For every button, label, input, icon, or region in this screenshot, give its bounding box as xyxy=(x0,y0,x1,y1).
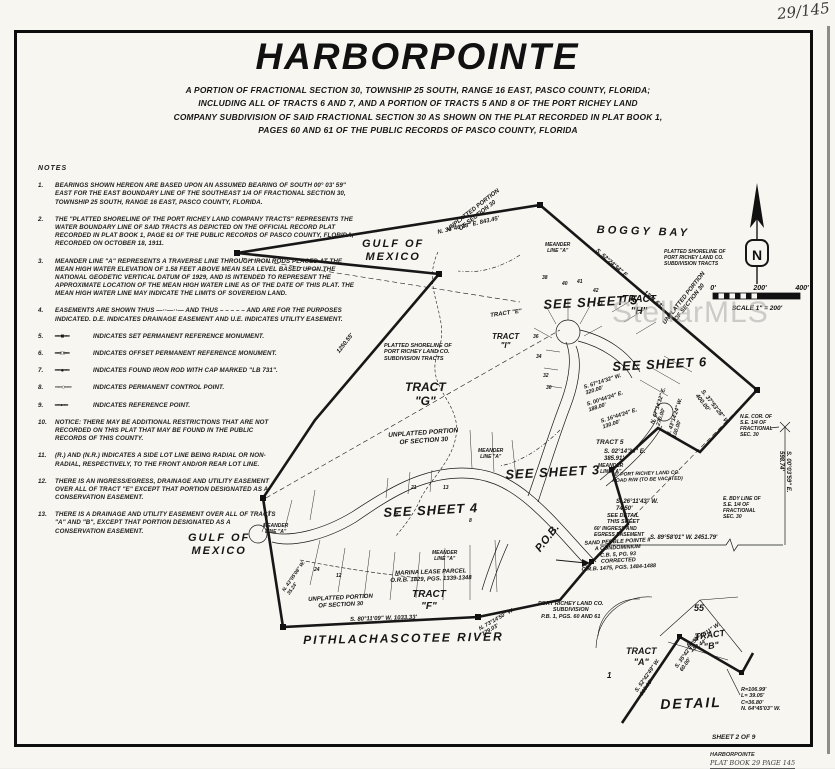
note-item: 10.NOTICE: THERE MAY BE ADDITIONAL RESTR… xyxy=(38,419,362,444)
note-item: 1.BEARINGS SHOWN HEREON ARE BASED UPON A… xyxy=(38,182,362,207)
detail-parcel-lines xyxy=(596,597,742,695)
note-item: 3.MEANDER LINE "A" REPRESENTS A TRAVERSE… xyxy=(38,258,362,299)
footer-plat-name: HARBORPOINTE xyxy=(710,752,795,759)
north-arrow-icon: N xyxy=(746,183,768,284)
notes-heading: NOTES xyxy=(38,164,362,173)
pob-leader-arrow xyxy=(556,559,590,567)
offset-prm-symbol-icon: ━━□━━ xyxy=(55,350,89,358)
section-reference-lines xyxy=(600,422,790,551)
found-iron-rod-symbol-icon: ━━●━━ xyxy=(55,367,89,375)
note-item: 2.THE "PLATTED SHORELINE OF THE PORT RIC… xyxy=(38,216,362,249)
footer-stamp: HARBORPOINTE PLAT BOOK 29 PAGE 145 xyxy=(710,752,795,769)
scale-tick-0: 0' xyxy=(710,285,716,292)
note-item: 11.(R.) AND (N.R.) INDICATES A SIDE LOT … xyxy=(38,452,362,468)
note-item: 13.THERE IS A DRAINAGE AND UTILITY EASEM… xyxy=(38,511,362,536)
note-item: 4.EASEMENTS ARE SHOWN THUS —··—··— AND T… xyxy=(38,307,362,323)
footer-plat-book-page: PLAT BOOK 29 PAGE 145 xyxy=(710,759,795,768)
north-arrow-letter: N xyxy=(752,247,762,263)
detail-boundary xyxy=(622,637,753,723)
note-item: 12.THERE IS AN INGRESS/EGRESS, DRAINAGE … xyxy=(38,478,362,503)
reference-point-symbol-icon: ━━•━━ xyxy=(55,402,89,410)
set-prm-symbol-icon: ━━■━━ xyxy=(55,333,89,341)
notes-section: NOTES 1.BEARINGS SHOWN HEREON ARE BASED … xyxy=(38,164,362,536)
scale-tick-200: 200' xyxy=(752,285,767,292)
note-item-legend: 5.━━■━━INDICATES SET PERMANENT REFERENCE… xyxy=(38,333,362,341)
note-item-legend: 8.╌·╌○╌·╌INDICATES PERMANENT CONTROL POI… xyxy=(38,384,362,392)
note-item-legend: 9.━━•━━INDICATES REFERENCE POINT. xyxy=(38,402,362,410)
pcp-symbol-icon: ╌·╌○╌·╌ xyxy=(55,384,89,392)
note-item-legend: 6.━━□━━INDICATES OFFSET PERMANENT REFERE… xyxy=(38,350,362,358)
note-item-legend: 7.━━●━━INDICATES FOUND IRON ROD WITH CAP… xyxy=(38,367,362,375)
watermark: StellarMLS xyxy=(612,296,832,330)
scale-tick-400: 400' xyxy=(794,285,809,292)
sheet-number: SHEET 2 OF 9 xyxy=(712,734,755,741)
